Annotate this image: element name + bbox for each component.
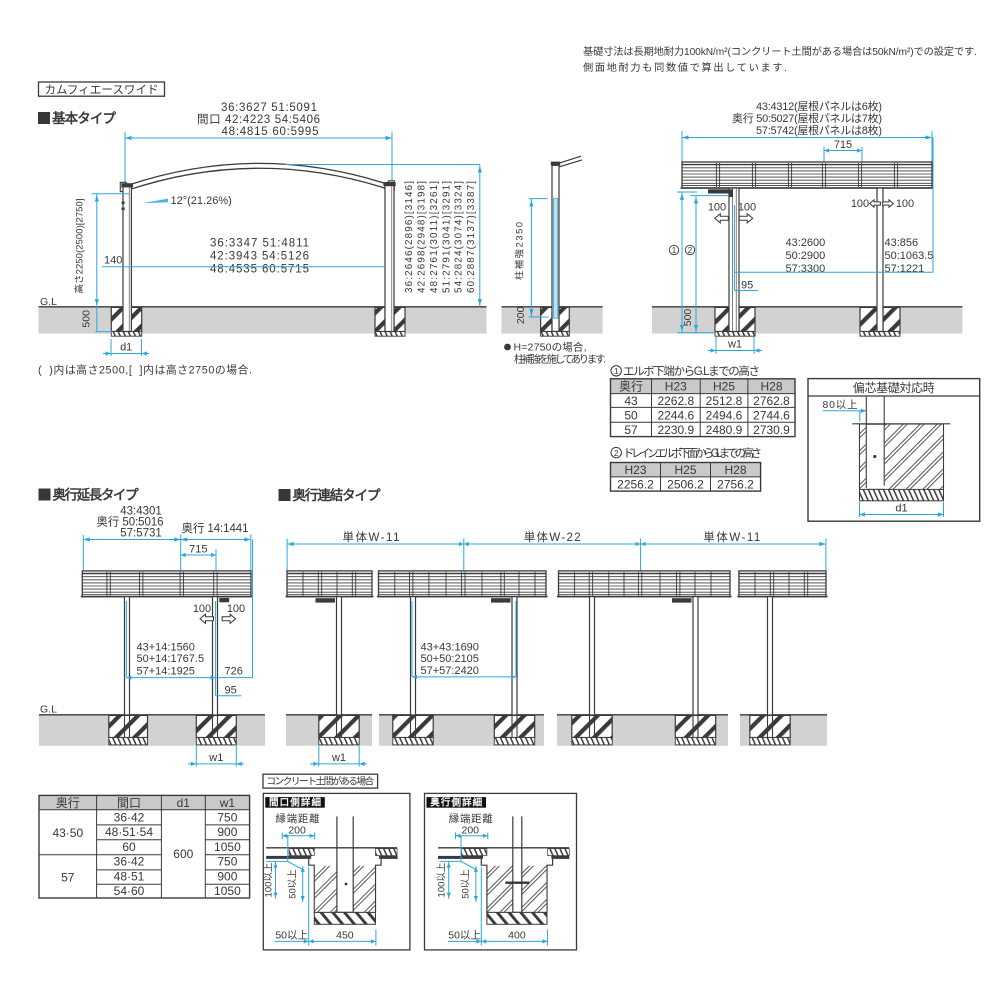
svg-text:42:3943 54:5126: 42:3943 54:5126	[210, 251, 309, 263]
svg-text:200: 200	[462, 825, 480, 837]
svg-text:縁端距離: 縁端距離	[449, 812, 494, 825]
svg-text:43: 43	[624, 394, 638, 408]
svg-text:奥行連結タイプ: 奥行連結タイプ	[293, 487, 382, 503]
svg-text:200: 200	[515, 306, 527, 324]
svg-text:100以上: 100以上	[437, 862, 448, 897]
svg-text:36:2646(2896)[3146]: 36:2646(2896)[3146]	[404, 181, 415, 293]
svg-text:2744.6: 2744.6	[753, 408, 790, 422]
svg-text:H28: H28	[724, 463, 746, 477]
svg-text:奥行延長タイプ: 奥行延長タイプ	[53, 487, 140, 503]
svg-text:d1: d1	[895, 503, 907, 515]
svg-text:2: 2	[614, 448, 619, 458]
svg-text:H28: H28	[760, 379, 782, 393]
svg-text:50以上: 50以上	[448, 929, 481, 941]
svg-text:1: 1	[614, 366, 619, 376]
svg-text:H23: H23	[665, 379, 687, 393]
svg-text:750: 750	[217, 810, 237, 824]
svg-text:2256.2: 2256.2	[617, 477, 654, 491]
svg-text:H25: H25	[674, 463, 696, 477]
svg-text:43·50: 43·50	[52, 826, 83, 840]
svg-text:54:2824(3074)[3324]: 54:2824(3074)[3324]	[454, 181, 465, 293]
svg-text:48·51·54: 48·51·54	[105, 825, 153, 839]
svg-text:95: 95	[741, 280, 753, 292]
svg-text:w1: w1	[208, 752, 223, 764]
svg-text:43+43:1690: 43+43:1690	[421, 642, 479, 654]
svg-text:48:2761(3011)[3261]: 48:2761(3011)[3261]	[429, 181, 440, 293]
svg-text:2730.9: 2730.9	[753, 423, 790, 437]
svg-text:48:4815 60:5995: 48:4815 60:5995	[222, 126, 319, 138]
svg-text:48:4535 60:5715: 48:4535 60:5715	[210, 264, 309, 276]
svg-text:715: 715	[189, 544, 207, 556]
svg-text:57:3300: 57:3300	[786, 263, 826, 275]
svg-text:2494.6: 2494.6	[706, 408, 743, 422]
svg-text:H=2750の場合,: H=2750の場合,	[514, 341, 587, 354]
svg-text:間口 42:4223 54:5406: 間口 42:4223 54:5406	[197, 113, 320, 126]
svg-text:2480.9: 2480.9	[706, 423, 743, 437]
svg-text:w1: w1	[727, 339, 742, 351]
svg-text:500: 500	[81, 310, 93, 328]
svg-text:400: 400	[508, 929, 526, 941]
svg-text:43:4312(屋根パネルは6枚): 43:4312(屋根パネルは6枚)	[756, 99, 882, 113]
svg-text:2230.9: 2230.9	[657, 423, 694, 437]
svg-text:750: 750	[217, 855, 237, 869]
svg-text:36:3347 51:4811: 36:3347 51:4811	[210, 238, 309, 250]
svg-text:奥行: 奥行	[56, 796, 80, 810]
svg-text:50以上: 50以上	[275, 929, 308, 941]
svg-text:600: 600	[173, 847, 193, 861]
svg-text:43:2600: 43:2600	[786, 237, 826, 249]
svg-text:2506.2: 2506.2	[667, 477, 704, 491]
svg-text:500: 500	[682, 309, 694, 327]
svg-text:1050: 1050	[214, 884, 241, 898]
svg-text:57:5731: 57:5731	[120, 528, 162, 540]
svg-text:36·42: 36·42	[114, 810, 145, 824]
svg-text:100: 100	[193, 603, 211, 615]
svg-text:50+50:2105: 50+50:2105	[421, 653, 479, 665]
svg-text:2762.8: 2762.8	[753, 394, 790, 408]
svg-text:715: 715	[834, 139, 852, 151]
svg-text:726: 726	[225, 666, 243, 678]
svg-text:d1: d1	[177, 796, 191, 810]
svg-text:57: 57	[61, 871, 75, 885]
svg-text:2: 2	[688, 246, 693, 255]
svg-text:1: 1	[672, 246, 677, 255]
svg-text:50以上: 50以上	[461, 869, 472, 899]
svg-text:( )内は高さ2500,[ ]内は高さ2750の場合.: ( )内は高さ2500,[ ]内は高さ2750の場合.	[38, 363, 252, 377]
svg-text:50:2900: 50:2900	[786, 250, 826, 262]
svg-text:36:3627 51:5091: 36:3627 51:5091	[221, 102, 317, 114]
svg-text:57+57:2420: 57+57:2420	[421, 665, 479, 677]
svg-text:100: 100	[851, 198, 869, 210]
svg-text:57: 57	[624, 423, 638, 437]
svg-text:54·60: 54·60	[114, 884, 145, 898]
svg-text:48·51: 48·51	[114, 869, 145, 883]
svg-text:43:856: 43:856	[885, 237, 919, 249]
svg-text:単体W-11: 単体W-11	[703, 530, 760, 544]
svg-text:柱補強を施してあります.: 柱補強を施してあります.	[514, 353, 606, 366]
svg-text:36·42: 36·42	[114, 855, 145, 869]
svg-text:1050: 1050	[214, 840, 241, 854]
svg-text:2756.2: 2756.2	[717, 477, 754, 491]
svg-text:100: 100	[896, 198, 914, 210]
svg-text:エルボ下端からG.Lまでの高さ: エルボ下端からG.Lまでの高さ	[623, 364, 760, 378]
svg-text:基本タイプ: 基本タイプ	[52, 110, 117, 126]
svg-text:50:1063.5: 50:1063.5	[885, 250, 934, 262]
svg-text:G.L: G.L	[40, 296, 57, 308]
svg-text:側面地耐力も同数値で算出しています.: 側面地耐力も同数値で算出しています.	[583, 61, 787, 74]
svg-text:12°(21.26%): 12°(21.26%)	[171, 195, 232, 207]
svg-text:57+14:1925: 57+14:1925	[137, 666, 195, 678]
svg-text:単体W-11: 単体W-11	[343, 530, 400, 544]
svg-text:単体W-22: 単体W-22	[524, 530, 581, 544]
svg-text:51:2791(3041)[3291]: 51:2791(3041)[3291]	[441, 181, 452, 293]
svg-text:95: 95	[225, 685, 237, 697]
svg-text:奥行: 奥行	[619, 379, 643, 393]
svg-text:柱補強2350: 柱補強2350	[513, 222, 524, 280]
svg-text:450: 450	[336, 929, 354, 941]
svg-text:900: 900	[217, 869, 237, 883]
svg-text:H25: H25	[713, 379, 735, 393]
svg-text:43+14:1560: 43+14:1560	[137, 642, 195, 654]
svg-text:高さ2250(2500)[2750]: 高さ2250(2500)[2750]	[74, 199, 86, 294]
svg-text:42:2698(2948)[3198]: 42:2698(2948)[3198]	[417, 181, 428, 293]
svg-text:間口側詳細: 間口側詳細	[269, 797, 321, 809]
svg-text:900: 900	[217, 825, 237, 839]
svg-text:60: 60	[122, 840, 136, 854]
svg-text:80以上: 80以上	[823, 399, 858, 411]
svg-text:100: 100	[708, 202, 726, 214]
svg-text:57:1221: 57:1221	[885, 263, 925, 275]
svg-text:G.L: G.L	[40, 704, 57, 716]
svg-text:200: 200	[288, 825, 306, 837]
svg-text:2262.8: 2262.8	[657, 394, 694, 408]
svg-text:w1: w1	[219, 796, 236, 810]
svg-text:100以上: 100以上	[263, 862, 274, 897]
svg-text:基礎寸法は長期地耐力100kN/m²(コンクリート土間がある: 基礎寸法は長期地耐力100kN/m²(コンクリート土間がある場合は50kN/m²…	[583, 45, 977, 58]
svg-text:奥行 14:1441: 奥行 14:1441	[182, 521, 249, 535]
svg-text:H23: H23	[624, 463, 646, 477]
svg-text:d1: d1	[120, 342, 132, 354]
svg-text:間口: 間口	[117, 796, 141, 810]
svg-text:カムフィエースワイド: カムフィエースワイド	[45, 83, 159, 96]
svg-text:奥行 50:5016: 奥行 50:5016	[97, 515, 164, 529]
svg-text:ドレインエルボ下面からG.Lまでの高さ: ドレインエルボ下面からG.Lまでの高さ	[623, 446, 762, 460]
svg-text:2244.6: 2244.6	[657, 408, 694, 422]
svg-text:奥行 50:5027(屋根パネルは7枚): 奥行 50:5027(屋根パネルは7枚)	[732, 111, 882, 125]
svg-text:偏芯基礎対応時: 偏芯基礎対応時	[853, 380, 935, 395]
svg-text:奥行側詳細: 奥行側詳細	[429, 797, 482, 809]
svg-text:100: 100	[738, 202, 756, 214]
svg-text:50以上: 50以上	[287, 869, 298, 899]
svg-text:57:5742(屋根パネルは8枚): 57:5742(屋根パネルは8枚)	[756, 123, 882, 137]
svg-text:50+14:1767.5: 50+14:1767.5	[137, 653, 205, 665]
svg-text:縁端距離: 縁端距離	[276, 812, 321, 825]
svg-text:140: 140	[104, 255, 122, 267]
svg-text:2512.8: 2512.8	[706, 394, 743, 408]
svg-text:60:2887(3137)[3387]: 60:2887(3137)[3387]	[466, 181, 477, 293]
svg-text:50: 50	[624, 408, 638, 422]
svg-text:コンクリート土間がある場合: コンクリート土間がある場合	[266, 775, 374, 788]
svg-text:w1: w1	[331, 752, 346, 764]
svg-text:100: 100	[227, 603, 245, 615]
